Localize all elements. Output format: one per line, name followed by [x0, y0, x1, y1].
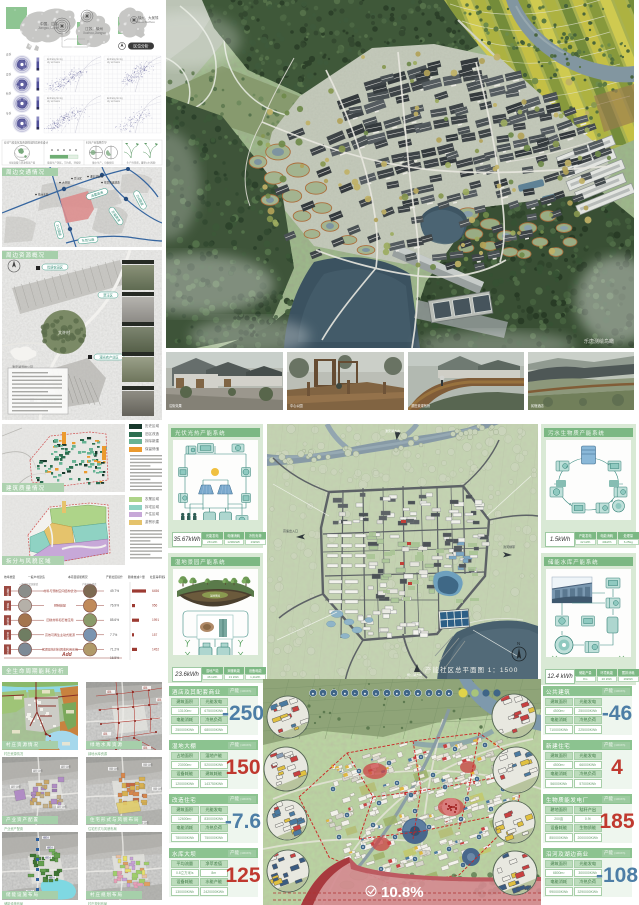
svg-text:B: B — [396, 781, 398, 785]
svg-text:10.8%: 10.8% — [381, 884, 424, 901]
svg-text:C: C — [388, 761, 390, 765]
svg-text:G: G — [372, 823, 374, 827]
svg-text:能源生产消耗，节约型，持续型: 能源生产消耗，节约型，持续型 — [47, 161, 81, 165]
svg-text:湿地景园: 湿地景园 — [210, 594, 221, 598]
svg-text:本项目醋能概况: 本项目醋能概况 — [68, 575, 88, 579]
svg-text:大许镇: 大许镇 — [62, 181, 70, 185]
svg-text:规划适应: 规划适应 — [6, 587, 9, 598]
svg-text:H: H — [378, 801, 380, 805]
svg-text:春季: 春季 — [6, 53, 12, 57]
svg-text:D: D — [466, 797, 468, 801]
svg-text:G: G — [346, 813, 348, 817]
svg-text:D: D — [420, 755, 422, 759]
svg-text:B: B — [358, 769, 360, 773]
svg-text:6456: 6456 — [152, 589, 159, 593]
svg-text:dry air basis: dry air basis — [107, 100, 121, 103]
svg-text:贾汪区: 贾汪区 — [103, 292, 113, 297]
svg-text:建筑工艺: 建筑工艺 — [6, 602, 9, 613]
svg-text:滨河绿带: 滨河绿带 — [503, 544, 515, 549]
svg-text:Add: Add — [61, 652, 73, 658]
svg-text:督公湖方向: 督公湖方向 — [407, 672, 422, 677]
svg-text:S: S — [414, 857, 416, 861]
svg-text:76.9%: 76.9% — [110, 604, 119, 608]
svg-text:全球变暖与资源慌张产能: 全球变暖与资源慌张产能 — [9, 161, 36, 165]
svg-text:C: C — [432, 773, 434, 777]
svg-text:优质建筑材料回收利用系统: 优质建筑材料回收利用系统 — [42, 646, 78, 651]
svg-text:中心公园: 中心公园 — [290, 403, 303, 408]
svg-text:村庄产业策略引导: 村庄产业策略引导 — [86, 141, 107, 145]
svg-text:材料与预制空间结构优化: 材料与预制空间结构优化 — [43, 588, 76, 593]
svg-text:●: ● — [333, 691, 335, 695]
svg-text:材料选择: 材料选择 — [6, 617, 9, 628]
svg-text:▲: ▲ — [427, 691, 430, 695]
svg-text:产能社区总平面图 1：1500: 产能社区总平面图 1：1500 — [425, 665, 518, 674]
svg-text:秋季: 秋季 — [6, 92, 12, 96]
svg-text:回收材料和石膏应用: 回收材料和石膏应用 — [46, 617, 73, 622]
svg-text:产能社区提升: 产能社区提升 — [106, 575, 123, 579]
svg-text:碳排放减少量: 碳排放减少量 — [128, 575, 145, 579]
svg-text:K: K — [476, 777, 478, 781]
svg-text:●: ● — [386, 691, 388, 695]
svg-text:A: A — [478, 835, 480, 839]
svg-text:dry air basis: dry air basis — [107, 61, 121, 64]
svg-text:1991: 1991 — [152, 618, 159, 622]
svg-text:E: E — [414, 809, 416, 813]
svg-text:预制装配: 预制装配 — [54, 603, 66, 608]
svg-text:Xuzhou,Jiangsu: Xuzhou,Jiangsu — [83, 31, 106, 35]
svg-text:dry air basis: dry air basis — [47, 100, 61, 103]
svg-text:Dawu,Xuzhou: Dawu,Xuzhou — [136, 20, 155, 24]
svg-text:956: 956 — [152, 604, 158, 608]
svg-text:71.2%: 71.2% — [110, 647, 119, 651]
svg-text:85.6%: 85.6% — [110, 618, 119, 622]
svg-text:产能社区建造: 产能社区建造 — [82, 582, 97, 586]
svg-text:■: ■ — [396, 691, 398, 695]
svg-text:dry air basis: dry air basis — [47, 61, 61, 64]
svg-text:N: N — [517, 641, 520, 646]
svg-text:■: ■ — [448, 691, 450, 695]
svg-text:16.5%: 16.5% — [110, 656, 119, 660]
svg-text:■: ■ — [344, 691, 346, 695]
svg-text:徐贾快速通道: 徐贾快速通道 — [104, 181, 120, 185]
svg-text:●: ● — [438, 691, 440, 695]
svg-text:沿街效果: 沿街效果 — [169, 403, 183, 408]
svg-text:效率类型: 效率类型 — [4, 575, 15, 579]
svg-text:贾汪区: 贾汪区 — [74, 177, 82, 181]
svg-text:再生能源: 再生能源 — [6, 631, 9, 642]
svg-text:✦: ✦ — [406, 691, 409, 695]
svg-text:R: R — [380, 867, 382, 871]
svg-text:157: 157 — [152, 633, 158, 637]
svg-text:夏季: 夏季 — [6, 73, 12, 77]
svg-text:一般砖瓦民居建造: 一般砖瓦民居建造 — [19, 582, 39, 586]
svg-text:N: N — [394, 835, 396, 839]
svg-text:乐唐测绘鸟瞰: 乐唐测绘鸟瞰 — [584, 338, 614, 345]
svg-text:生产性景观，重塑乡村风貌: 生产性景观，重塑乡村风貌 — [127, 161, 156, 165]
svg-text:H: H — [338, 835, 340, 839]
svg-text:社区等年能耗减排放量kg/year: 社区等年能耗减排放量kg/year — [150, 575, 165, 579]
svg-text:一般乡村建造: 一般乡村建造 — [28, 575, 45, 579]
svg-text:循环系统: 循环系统 — [6, 646, 9, 657]
svg-text:Jiangsu,China: Jiangsu,China — [38, 26, 58, 30]
svg-text:P: P — [460, 817, 462, 821]
svg-text:优质农田区: 优质农田区 — [47, 264, 64, 269]
svg-text:徐州东站: 徐州东站 — [38, 193, 49, 197]
svg-text:E: E — [454, 747, 456, 751]
svg-text:民宿酒店: 民宿酒店 — [531, 403, 544, 408]
svg-text:冬季: 冬季 — [6, 112, 12, 116]
svg-text:✦: ✦ — [354, 691, 357, 695]
svg-text:A: A — [332, 787, 334, 791]
svg-text:49.7%: 49.7% — [110, 589, 119, 593]
svg-text:应对气候变化及资源挑战的适老化设计: 应对气候变化及资源挑战的适老化设计 — [4, 141, 49, 145]
svg-text:高效可再生主动式能源: 高效可再生主动式能源 — [45, 632, 75, 637]
svg-text:潘安湖街道: 潘安湖街道 — [90, 175, 103, 179]
svg-text:观光农产业区: 观光农产业区 — [99, 354, 119, 359]
svg-text:7.7%: 7.7% — [110, 633, 117, 637]
svg-text:集中生产，分散使用: 集中生产，分散使用 — [92, 161, 114, 165]
svg-text:潘安湖方向: 潘安湖方向 — [385, 428, 400, 433]
svg-text:大许村: 大许村 — [58, 329, 70, 335]
svg-text:滨田景观栈桥: 滨田景观栈桥 — [411, 403, 431, 408]
svg-text:O: O — [428, 825, 430, 829]
svg-text:▲: ▲ — [321, 691, 324, 695]
svg-text:区位分析: 区位分析 — [133, 44, 148, 49]
svg-text:M: M — [362, 845, 364, 849]
svg-text:高速出入口: 高速出入口 — [283, 528, 298, 533]
svg-text:1452: 1452 — [152, 647, 159, 651]
svg-text:▲: ▲ — [374, 691, 377, 695]
